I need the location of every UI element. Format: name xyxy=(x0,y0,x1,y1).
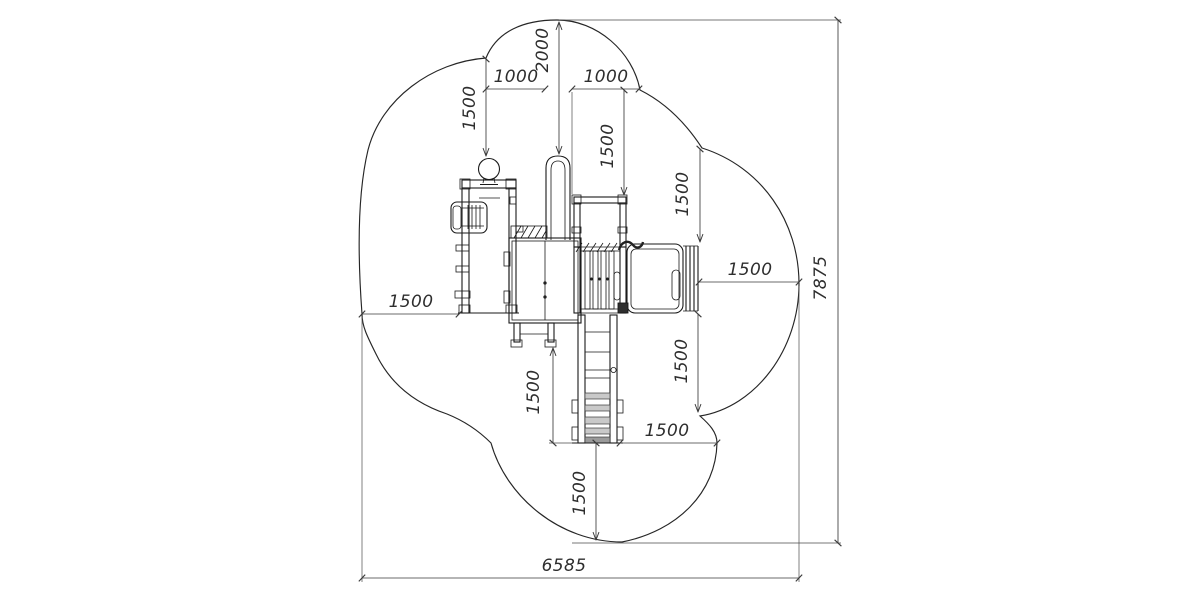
dim-label-right-lower-clearance: 1500 xyxy=(672,339,692,384)
dim-label-top-left-width: 1000 xyxy=(494,67,539,87)
bridge-left-rail xyxy=(574,203,580,247)
platform-bolt xyxy=(544,296,546,298)
platform-bolt xyxy=(544,282,546,284)
dim-right-lower-clearance: 1500 xyxy=(672,314,698,412)
extension-lines xyxy=(362,20,841,582)
dim-label-overall-width: 6585 xyxy=(542,556,587,576)
exit-rungs xyxy=(686,246,698,311)
dim-label-upper-left-clearance: 1500 xyxy=(460,86,480,131)
ladder-right-rail xyxy=(610,315,617,443)
entry-ladder xyxy=(511,323,556,347)
entry-ladder-rail xyxy=(514,323,520,342)
ladder-rungs xyxy=(585,332,610,378)
bridge-rail xyxy=(572,195,627,247)
dim-upper-mid-clearance: 1500 xyxy=(598,90,624,195)
dim-label-upper-mid-clearance: 1500 xyxy=(598,124,618,169)
plan-drawing: 2000 1000 1000 1500 1500 1500 1500 xyxy=(0,0,1200,600)
pole-outer xyxy=(546,156,570,240)
barrel-body xyxy=(627,244,683,313)
dim-top-right-width: 1000 xyxy=(572,67,639,89)
tower-frame xyxy=(455,179,523,313)
pole-inner xyxy=(551,161,565,240)
climbing-panel-rails xyxy=(461,208,484,226)
ladder-hinge xyxy=(611,367,616,372)
ladder-side-tab xyxy=(617,400,623,413)
ring-icon xyxy=(479,159,500,180)
rail-bracket xyxy=(510,197,516,204)
dim-right-upper-clearance: 1500 xyxy=(673,149,700,242)
safety-zone-boundary xyxy=(359,20,799,542)
ladder-step xyxy=(585,393,610,399)
ladder-side-tab xyxy=(617,427,623,440)
dim-label-top-height: 2000 xyxy=(533,28,553,73)
dim-label-right-side-clearance: 1500 xyxy=(728,260,773,280)
dim-top-height: 2000 xyxy=(533,22,559,154)
tower-foot xyxy=(506,305,517,313)
pole-panel xyxy=(546,156,570,240)
ladder-bottom-step xyxy=(585,437,610,443)
walkway-slat xyxy=(609,251,614,309)
dim-lower-left-clearance: 1500 xyxy=(524,348,553,443)
dim-bottom-clearance: 1500 xyxy=(570,443,596,540)
equipment xyxy=(451,156,698,443)
walkway-slat xyxy=(601,251,606,309)
slat-pivot xyxy=(599,278,601,280)
dim-label-top-right-width: 1000 xyxy=(584,67,629,87)
barrel-foot xyxy=(618,303,628,313)
dimensions: 2000 1000 1000 1500 1500 1500 1500 xyxy=(362,20,838,578)
dim-overall-height: 7875 xyxy=(811,20,838,543)
bridge-right-rail xyxy=(620,203,626,247)
dim-label-lower-left-clearance: 1500 xyxy=(524,370,544,415)
dim-label-overall-height: 7875 xyxy=(811,256,831,301)
dim-upper-left-clearance: 1500 xyxy=(460,59,486,156)
entry-ladder-rail xyxy=(548,323,554,342)
walkway-slot xyxy=(614,272,620,300)
ladder-side-tab xyxy=(572,427,578,440)
dim-overall-width: 6585 xyxy=(362,556,799,578)
dim-lower-right-clearance: 1500 xyxy=(620,421,717,443)
dim-right-side-clearance: 1500 xyxy=(699,260,799,282)
ladder-step xyxy=(585,428,610,434)
climbing-panel-cap xyxy=(453,206,461,229)
dim-label-left-side-clearance: 1500 xyxy=(389,292,434,312)
climbing-panel-bars xyxy=(468,205,480,229)
dim-label-lower-right-clearance: 1500 xyxy=(645,421,690,441)
ladder-step xyxy=(585,405,610,411)
descent-ladder xyxy=(572,315,623,443)
dim-left-side-clearance: 1500 xyxy=(362,292,459,314)
safety-zone-outline xyxy=(359,20,799,542)
dim-label-bottom-clearance: 1500 xyxy=(570,471,590,516)
slat-pivot xyxy=(607,278,609,280)
slat-pivot xyxy=(591,278,593,280)
dim-label-right-upper-clearance: 1500 xyxy=(673,172,693,217)
ladder-step xyxy=(585,417,610,424)
drawing-canvas: 2000 1000 1000 1500 1500 1500 1500 xyxy=(0,0,1200,600)
bridge-slats xyxy=(574,243,626,313)
walkway-slat xyxy=(585,251,590,309)
dim-top-left-width: 1000 xyxy=(486,67,545,89)
walkway-left-rail xyxy=(574,247,580,313)
tower-foot xyxy=(459,305,470,313)
ladder-side-tab xyxy=(572,400,578,413)
walkway-slat xyxy=(593,251,598,309)
barrel-module xyxy=(618,242,698,313)
ring-element xyxy=(479,159,500,184)
ladder-left-rail xyxy=(578,315,585,443)
